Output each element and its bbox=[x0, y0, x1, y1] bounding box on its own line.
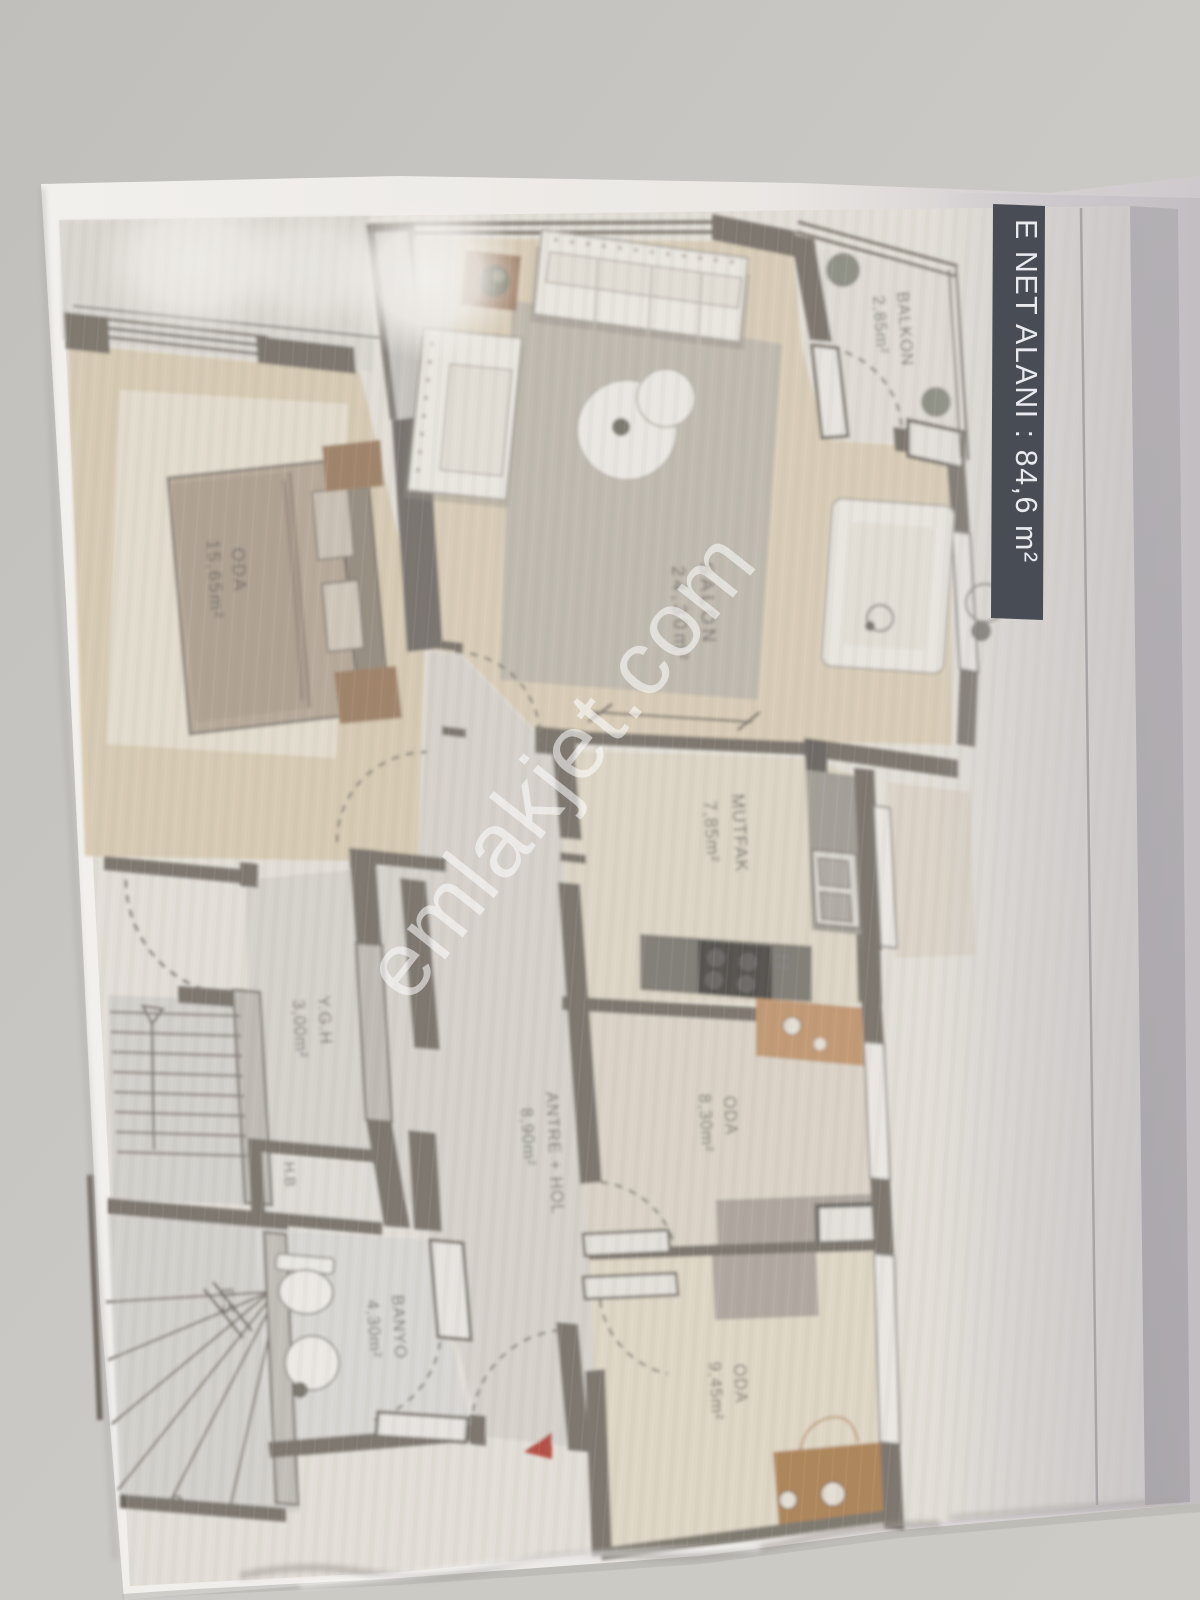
svg-text:E NET ALANI : 84,6 m²: E NET ALANI : 84,6 m² bbox=[1009, 219, 1043, 564]
